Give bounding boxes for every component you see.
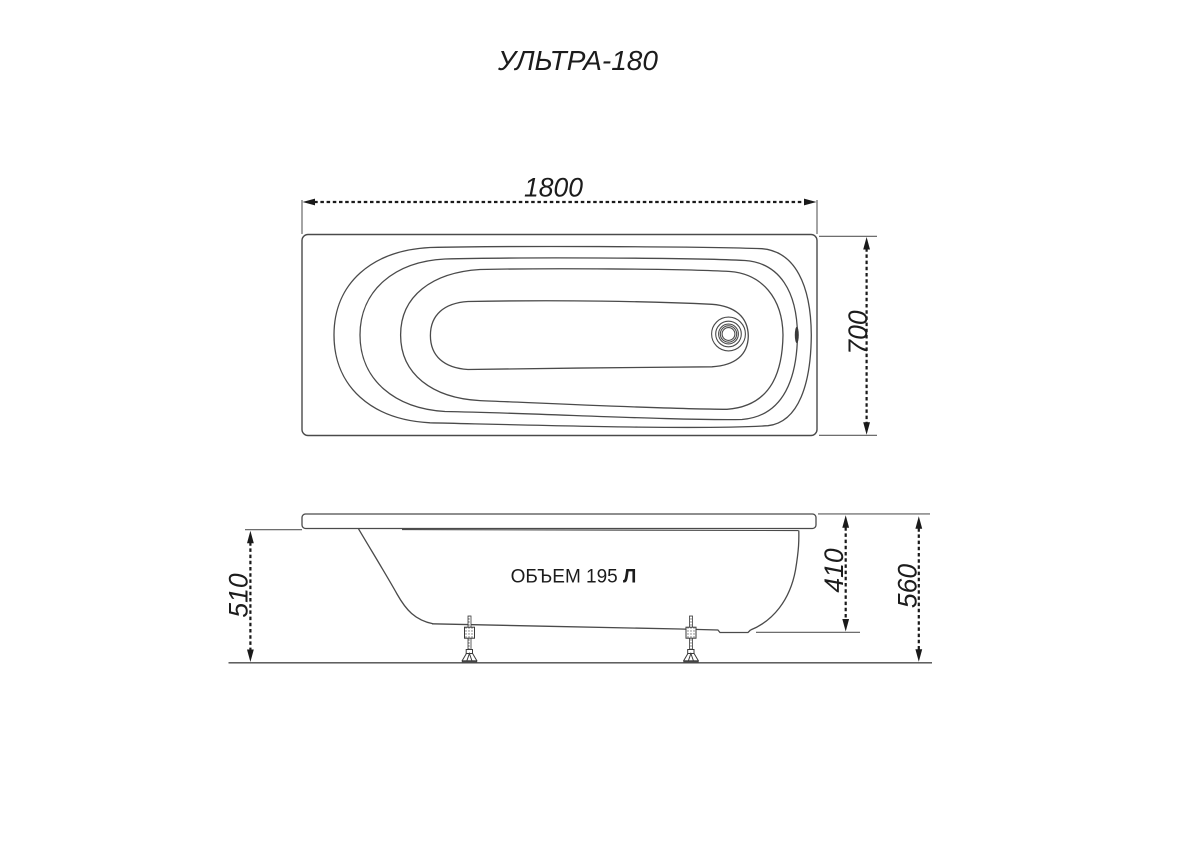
svg-text:700: 700 — [843, 310, 873, 354]
svg-text:ОБЪЕМ 195 Л: ОБЪЕМ 195 Л — [511, 567, 637, 588]
svg-text:560: 560 — [893, 564, 923, 608]
svg-text:УЛЬТРА-180: УЛЬТРА-180 — [497, 45, 658, 76]
svg-text:410: 410 — [819, 548, 849, 592]
svg-text:1800: 1800 — [524, 173, 583, 203]
svg-text:510: 510 — [224, 573, 254, 617]
